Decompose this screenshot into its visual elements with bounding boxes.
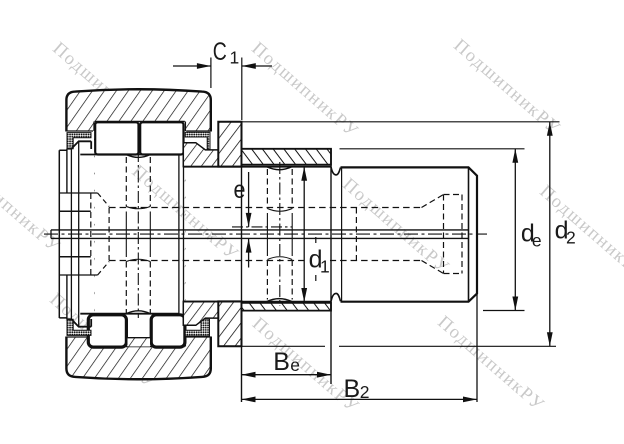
svg-text:B: B	[344, 375, 361, 403]
svg-text:e: e	[290, 355, 300, 375]
svg-text:2: 2	[566, 228, 576, 248]
svg-text:e: e	[532, 231, 542, 251]
svg-text:B: B	[273, 348, 290, 376]
svg-text:C: C	[213, 38, 227, 66]
svg-text:1: 1	[230, 48, 240, 68]
svg-text:2: 2	[360, 382, 370, 402]
svg-text:e: e	[234, 175, 246, 203]
svg-text:1: 1	[320, 257, 330, 277]
